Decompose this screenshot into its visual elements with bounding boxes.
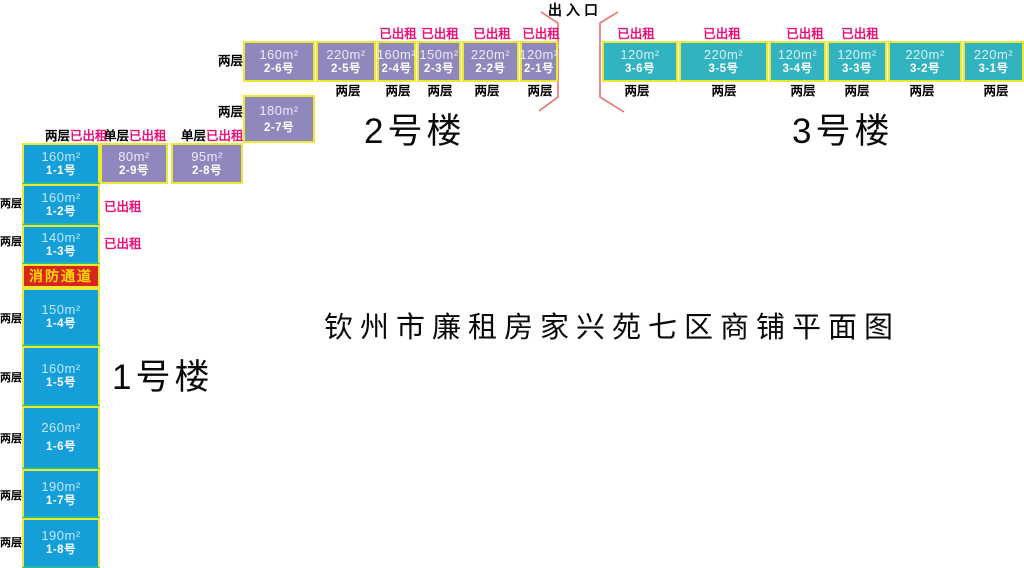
unit-area: 150m²	[41, 303, 80, 316]
entrance-markers	[0, 0, 1024, 568]
unit-number: 2-1号	[524, 64, 554, 76]
storey-label: 两层	[218, 106, 243, 119]
unit-area: 120m²	[837, 48, 876, 61]
storey-label: 两层	[474, 85, 499, 98]
fire-passage-label: 消防通道	[29, 266, 93, 286]
entrance-label: 出入口	[548, 3, 602, 17]
storey-label: 两层	[0, 199, 22, 210]
storey-label: 两层	[790, 85, 815, 98]
storey-label: 两层	[0, 314, 22, 325]
unit-2-6: 160m² 2-6号	[243, 41, 315, 82]
rented-label: 已出租	[379, 28, 417, 41]
unit-1-6: 260m² 1-6号	[22, 406, 100, 469]
unit-number: 1-5号	[46, 378, 76, 390]
unit-area: 140m²	[41, 231, 80, 244]
unit-number: 1-4号	[46, 319, 76, 331]
unit-number: 2-3号	[424, 64, 454, 76]
unit-number: 3-3号	[842, 64, 872, 76]
unit-number: 2-4号	[381, 64, 411, 76]
page-title: 钦州市廉租房家兴苑七区商铺平面图	[324, 311, 900, 346]
unit-area: 220m²	[905, 48, 944, 61]
unit-3-2: 220m² 3-2号	[888, 41, 962, 82]
unit-3-3: 120m² 3-3号	[827, 41, 887, 82]
floor-plan: 出入口 两层已出租 单层已出租 单层已出租 160m² 1-1号 160m² 1…	[0, 0, 1024, 568]
unit-number: 2-6号	[264, 64, 294, 76]
rented-label: 已出租	[206, 129, 244, 143]
unit-area: 120m²	[620, 48, 659, 61]
rented-label: 已出租	[104, 201, 142, 214]
storey-label: 两层	[0, 434, 22, 445]
unit-number: 2-7号	[264, 123, 294, 135]
fire-passage: 消防通道	[22, 264, 100, 288]
unit-area: 220m²	[974, 48, 1013, 61]
unit-1-2: 160m² 1-2号	[22, 184, 100, 225]
unit-2-2: 220m² 2-2号	[462, 41, 519, 82]
unit-1-7: 190m² 1-7号	[22, 469, 100, 518]
unit-2-5: 220m² 2-5号	[316, 41, 376, 82]
unit-number: 3-5号	[708, 64, 738, 76]
unit-1-5: 160m² 1-5号	[22, 346, 100, 406]
unit-3-1: 220m² 3-1号	[963, 41, 1024, 82]
unit-2-9: 80m² 2-9号	[100, 143, 168, 184]
storey-label: 两层	[711, 85, 736, 98]
unit-2-4: 160m² 2-4号	[377, 41, 416, 82]
storey-label: 两层	[45, 129, 70, 143]
storey-label: 单层	[181, 129, 206, 143]
unit-1-1-header-label: 两层已出租	[45, 130, 108, 143]
storey-label: 两层	[0, 491, 22, 502]
rented-label: 已出租	[522, 28, 560, 41]
unit-area: 190m²	[41, 480, 80, 493]
building-3-name: 3号楼	[792, 114, 893, 149]
rented-label: 已出租	[421, 28, 459, 41]
unit-2-8-header-label: 单层已出租	[181, 130, 244, 143]
building-2-name: 2号楼	[364, 114, 465, 149]
rented-label: 已出租	[841, 28, 879, 41]
unit-3-5: 220m² 3-5号	[679, 41, 768, 82]
unit-number: 1-6号	[46, 442, 76, 454]
unit-area: 220m²	[326, 48, 365, 61]
unit-area: 150m²	[419, 48, 458, 61]
unit-area: 220m²	[704, 48, 743, 61]
rented-label: 已出租	[786, 28, 824, 41]
unit-area: 160m²	[41, 362, 80, 375]
storey-label: 两层	[335, 85, 360, 98]
unit-2-7: 180m² 2-7号	[243, 95, 315, 143]
unit-number: 3-1号	[978, 64, 1008, 76]
unit-area: 120m²	[778, 48, 817, 61]
rented-label: 已出租	[70, 129, 108, 143]
unit-area: 160m²	[259, 48, 298, 61]
storey-label: 两层	[427, 85, 452, 98]
unit-3-6: 120m² 3-6号	[602, 41, 678, 82]
unit-2-1: 120m² 2-1号	[520, 41, 558, 82]
storey-label: 两层	[983, 85, 1008, 98]
storey-label: 两层	[844, 85, 869, 98]
unit-number: 2-8号	[192, 166, 222, 178]
rented-label: 已出租	[617, 28, 655, 41]
unit-area: 120m²	[519, 48, 558, 61]
storey-label: 两层	[909, 85, 934, 98]
storey-label: 两层	[0, 237, 22, 248]
storey-label: 两层	[0, 538, 22, 549]
unit-1-1: 160m² 1-1号	[22, 143, 100, 184]
unit-area: 95m²	[191, 150, 223, 163]
rented-label: 已出租	[473, 28, 511, 41]
unit-number: 1-7号	[46, 496, 76, 508]
unit-number: 3-4号	[782, 64, 812, 76]
unit-area: 80m²	[118, 150, 150, 163]
rented-label: 已出租	[703, 28, 741, 41]
unit-number: 1-2号	[46, 207, 76, 219]
unit-area: 220m²	[471, 48, 510, 61]
rented-label: 已出租	[129, 129, 167, 143]
rented-label: 已出租	[104, 238, 142, 251]
unit-area: 160m²	[377, 48, 416, 61]
unit-1-8: 190m² 1-8号	[22, 518, 100, 568]
unit-2-8: 95m² 2-8号	[171, 143, 243, 184]
unit-number: 3-6号	[625, 64, 655, 76]
storey-label: 两层	[527, 85, 552, 98]
building-1-name: 1号楼	[112, 360, 213, 395]
unit-number: 2-5号	[331, 64, 361, 76]
unit-3-4: 120m² 3-4号	[769, 41, 826, 82]
unit-area: 260m²	[41, 421, 80, 434]
unit-area: 160m²	[41, 150, 80, 163]
storey-label: 两层	[0, 373, 22, 384]
unit-1-4: 150m² 1-4号	[22, 288, 100, 346]
storey-label: 两层	[624, 85, 649, 98]
unit-number: 1-8号	[46, 545, 76, 557]
unit-1-3: 140m² 1-3号	[22, 225, 100, 264]
unit-number: 3-2号	[910, 64, 940, 76]
unit-2-3: 150m² 2-3号	[417, 41, 461, 82]
unit-number: 2-2号	[475, 64, 505, 76]
unit-number: 2-9号	[119, 166, 149, 178]
unit-area: 180m²	[259, 104, 298, 117]
storey-label: 单层	[104, 129, 129, 143]
unit-area: 160m²	[41, 191, 80, 204]
unit-area: 190m²	[41, 529, 80, 542]
storey-label: 两层	[385, 85, 410, 98]
unit-2-9-header-label: 单层已出租	[104, 130, 167, 143]
storey-label: 两层	[218, 55, 243, 68]
unit-number: 1-1号	[46, 166, 76, 178]
unit-number: 1-3号	[46, 247, 76, 259]
